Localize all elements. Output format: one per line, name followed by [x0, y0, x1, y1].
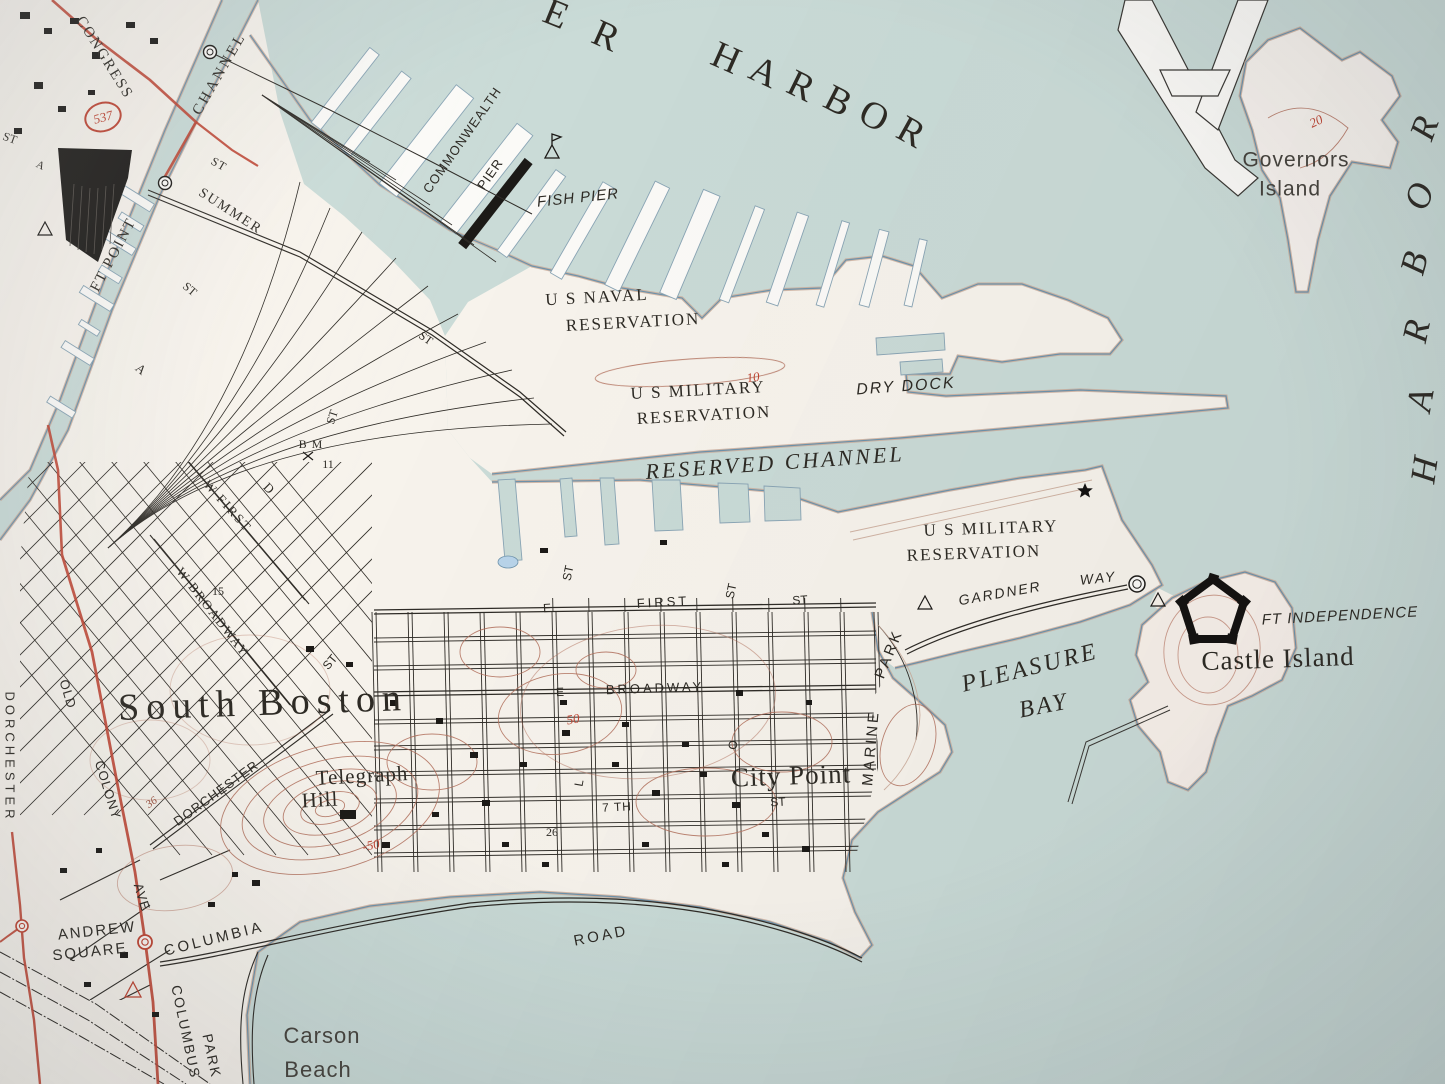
label-marine-park: MARINE — [860, 709, 882, 786]
label-us-military-reservation-1: RESERVATION — [636, 403, 771, 427]
label-gardner-way: GARDNER — [957, 579, 1042, 607]
label-harbor-vertical: B — [1394, 248, 1434, 279]
label-36: 36 — [144, 795, 159, 810]
label-harbor-vertical: R — [1403, 112, 1444, 145]
contour-label-20: 20 — [1307, 112, 1324, 129]
label-columbia-road: COLUMBIA — [163, 919, 266, 958]
label-old-colony: OLD — [57, 678, 78, 710]
label-e-broadway: BROADWAY — [606, 680, 705, 696]
label-columbus-park: PARK — [200, 1032, 223, 1079]
label-a: A — [34, 159, 46, 172]
label-congress-st: CONGRESS — [73, 14, 136, 102]
label-harbor-vertical: H — [1404, 455, 1443, 486]
label-st: ST — [724, 582, 739, 600]
label-telegraph-hill: Hill — [301, 789, 339, 812]
label-andrew-square: SQUARE — [52, 941, 129, 964]
label-ft-independence: FT INDEPENDENCE — [1261, 604, 1418, 627]
label-old-colony: COLONY — [93, 759, 123, 821]
label-reserved-channel: RESERVED CHANNEL — [645, 443, 906, 483]
label-us-naval-reservation: U S NAVAL — [545, 286, 649, 308]
label-st: ST — [770, 796, 786, 809]
label-pleasure-bay: PLEASURE — [959, 639, 1101, 696]
label-south-boston: South Boston — [117, 679, 408, 727]
label-d-st: D — [261, 480, 277, 496]
label-st: ST — [417, 329, 435, 347]
contour-label-50: 50 — [565, 711, 580, 726]
label-l-st: L — [573, 779, 586, 788]
label-ft-point-channel: FT POINT — [88, 216, 139, 295]
label-w-first-st: W FIRST — [202, 478, 255, 535]
label-harbor-arc: H — [706, 35, 747, 81]
label-7th-st: 7 TH — [602, 800, 632, 814]
label-dry-dock: DRY DOCK — [856, 376, 956, 399]
label-harbor-arc: E — [538, 0, 574, 36]
label-dorchester-edge: DORCHESTER — [4, 691, 17, 822]
label-city-point: City Point — [730, 760, 851, 791]
label-harbor-arc: B — [818, 78, 858, 123]
label-summer-st: SUMMER — [196, 186, 265, 237]
label-columbia-road: ROAD — [572, 923, 629, 948]
label-ave: AVE — [132, 882, 153, 913]
label-harbor-vertical: O — [1398, 178, 1440, 214]
route-marker-537: 537 — [92, 108, 114, 126]
label-o-st: O — [726, 739, 739, 750]
label-gardner-way: WAY — [1079, 569, 1117, 587]
label-harbor-arc: R — [781, 63, 820, 108]
label-castle-island: Castle Island — [1201, 643, 1355, 675]
label-st: ST — [1, 130, 18, 146]
label-e-broadway: E — [556, 686, 564, 698]
label-st: ST — [324, 408, 340, 425]
contour-label-10: 10 — [746, 370, 761, 385]
label-26: 26 — [546, 826, 558, 838]
label-a-st: A — [133, 361, 149, 377]
label-us-military-reservation-2: U S MILITARY — [923, 517, 1059, 539]
label-marine-park: PARK — [872, 627, 905, 681]
label-st: ST — [181, 280, 199, 298]
label-st: ST — [561, 564, 576, 582]
label-harbor-arc: A — [744, 49, 785, 95]
label-fish-pier: FISH PIER — [536, 186, 619, 210]
label-st: ST — [792, 593, 808, 606]
label-carson-beach: Beach — [284, 1059, 351, 1081]
contour-label-50: -50 — [361, 837, 381, 853]
label-e-first-st: E — [543, 602, 552, 614]
label-w-broadway: W BROADWAY — [174, 565, 251, 659]
label-harbor-vertical: R — [1396, 316, 1436, 345]
label-benchmark-11: 11 — [322, 458, 334, 470]
label-harbor-arc: R — [891, 109, 932, 155]
label-harbor-arc: R — [587, 13, 626, 58]
label-st: ST — [320, 652, 339, 671]
label-harbor-arc: O — [853, 93, 895, 139]
label-telegraph-hill: Telegraph — [315, 763, 409, 789]
label-carson-beach: Carson — [284, 1025, 361, 1047]
label-columbus-park: COLUMBUS — [169, 984, 203, 1080]
map-photo: ERHARBORROBRAHGovernorsIsland20CONGRESS5… — [0, 0, 1445, 1084]
label-governors-island: Governors — [1242, 150, 1349, 171]
label-dorchester-st: DORCHESTER — [171, 758, 260, 828]
label-governors-island: Island — [1259, 179, 1321, 200]
label-benchmark: B M — [299, 438, 324, 450]
label-harbor-vertical: A — [1400, 386, 1439, 414]
map-labels: ERHARBORROBRAHGovernorsIsland20CONGRESS5… — [0, 0, 1445, 1084]
label-st: ST — [209, 155, 229, 173]
label-ft-point-channel: CHANNEL — [190, 30, 249, 118]
label-commonwealth-pier: PIER — [475, 156, 505, 192]
label-15: 15 — [212, 585, 224, 597]
label-e-first-st: FIRST — [636, 594, 689, 610]
label-pleasure-bay: BAY — [1017, 689, 1071, 722]
label-us-military-reservation-2: RESERVATION — [906, 542, 1041, 564]
label-us-naval-reservation: RESERVATION — [565, 310, 700, 334]
label-us-military-reservation-1: U S MILITARY — [630, 378, 766, 402]
